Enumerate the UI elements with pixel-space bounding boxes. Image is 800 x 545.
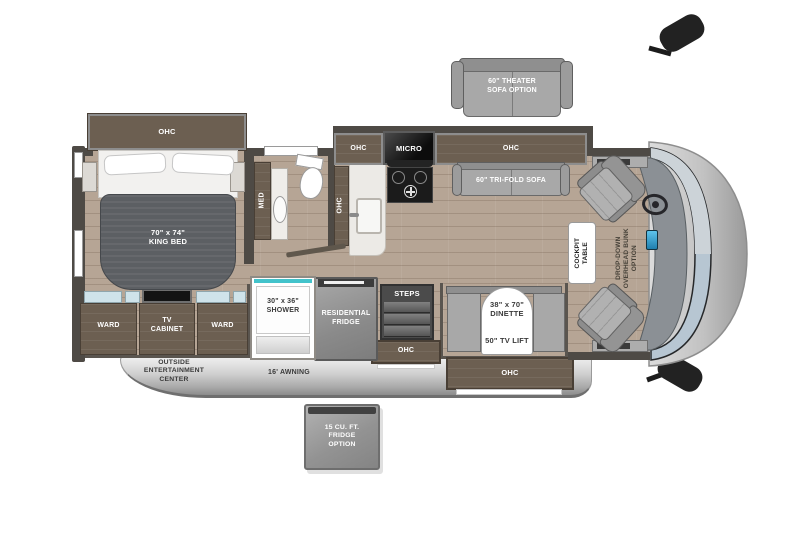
tri-fold-sofa-label: 60" TRI-FOLD SOFA [457,177,565,186]
bathroom-ohc-label: OHC [337,184,346,226]
tv-lift-label: 50" TV LIFT [477,336,537,345]
burner [392,171,405,184]
king-bed-label: 70" x 74" KING BED [100,228,236,247]
dinette-bench [533,293,565,352]
rear-window [74,230,83,277]
pillow [172,152,235,175]
awning-label: 16' AWNING [250,369,328,378]
dinette-bench [447,293,481,352]
step-tread [384,326,430,337]
rv-floorplan: OUTSIDE ENTERTAINMENT CENTER 16' AWNING … [0,0,800,545]
dinette-label: 38" x 70" DINETTE [481,300,533,319]
entry-trim [377,364,435,369]
bathroom-sink [273,196,287,223]
dinette-ohc-label: OHC [446,368,574,377]
tv-screen [142,289,192,303]
fridge-handle [324,281,364,284]
wardrobe-right-label: WARD [197,322,248,331]
cockpit-table-label: COCKPIT TABLE [574,225,590,281]
kitchen-sink [356,198,382,234]
theater-sofa-label: 60" THEATER SOFA OPTION [461,78,563,96]
shower-label: 30" x 36" SHOWER [252,298,314,316]
burner [414,171,427,184]
wardrobe-left-label: WARD [80,322,137,331]
kitchen-ohc-left-label: OHC [334,145,383,154]
slide-window [84,291,122,303]
fridge-option-label: 15 CU. FT. FRIDGE OPTION [306,424,378,449]
entry-ohc-label: OHC [371,347,441,356]
medicine-cabinet-label: MED [259,179,268,221]
fridge-option-top [308,407,376,414]
side-mirror-top [649,10,708,56]
slide-window [233,291,246,303]
outside-entertainment-label: OUTSIDE ENTERTAINMENT CENTER [128,359,220,384]
bathroom-window [264,146,318,156]
bedroom-ohc-label: OHC [88,127,246,136]
microwave-label: MICRO [383,144,435,153]
burner-crosshair [404,185,417,198]
kitchen-ohc-right-label: OHC [435,145,587,154]
pillow [104,152,167,175]
step-tread [384,302,430,313]
bedroom-partition-wall [244,150,254,264]
nightstand [82,162,97,192]
dash-screen [646,230,658,250]
range-hood [387,160,433,167]
shower-bench [256,336,310,354]
kitchen-faucet [349,213,359,217]
slide-window [196,291,230,303]
overhead-bunk-option-label: DROP-DOWN OVERHEAD BUNK OPTION [615,206,639,310]
step-tread [384,314,430,325]
top-wall [590,148,650,156]
slide-window [125,291,140,303]
slideout-trim [456,389,562,395]
tv-cabinet-label: TV CABINET [139,317,195,335]
residential-fridge-label: RESIDENTIAL FRIDGE [314,310,378,328]
shower-glass-accent [254,279,312,283]
steps-label: STEPS [380,289,434,298]
